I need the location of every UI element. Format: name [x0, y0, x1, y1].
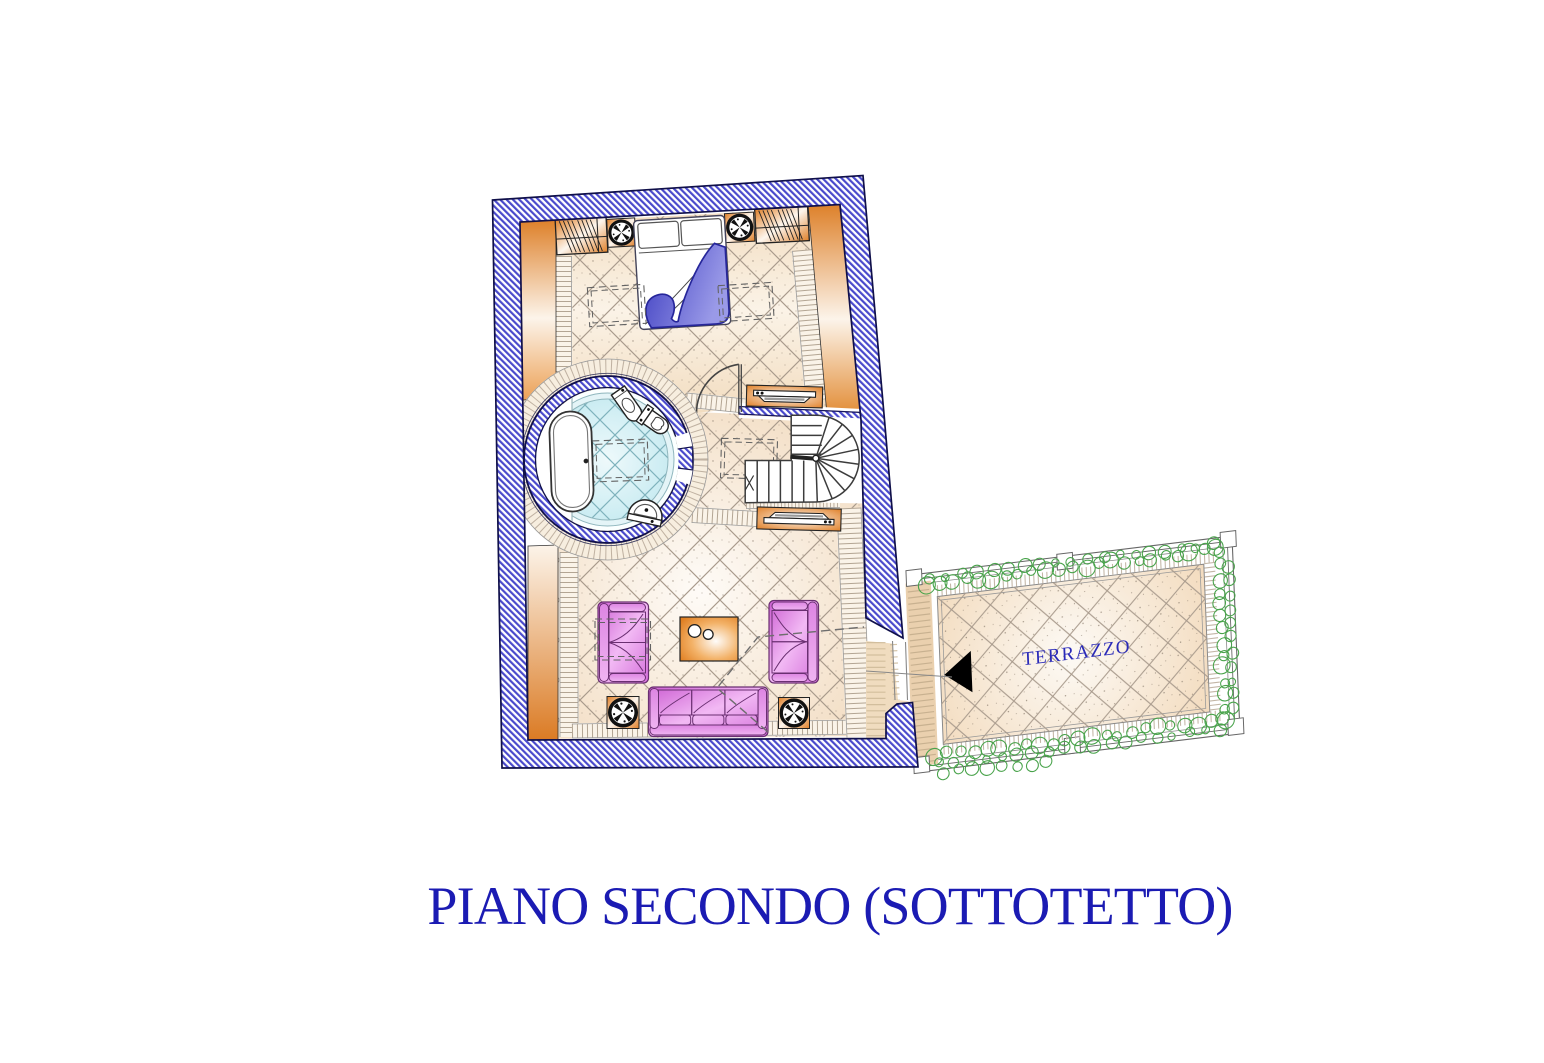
svg-text:PIANO SECONDO (SOTTOTETTO): PIANO SECONDO (SOTTOTETTO) — [427, 876, 1232, 936]
